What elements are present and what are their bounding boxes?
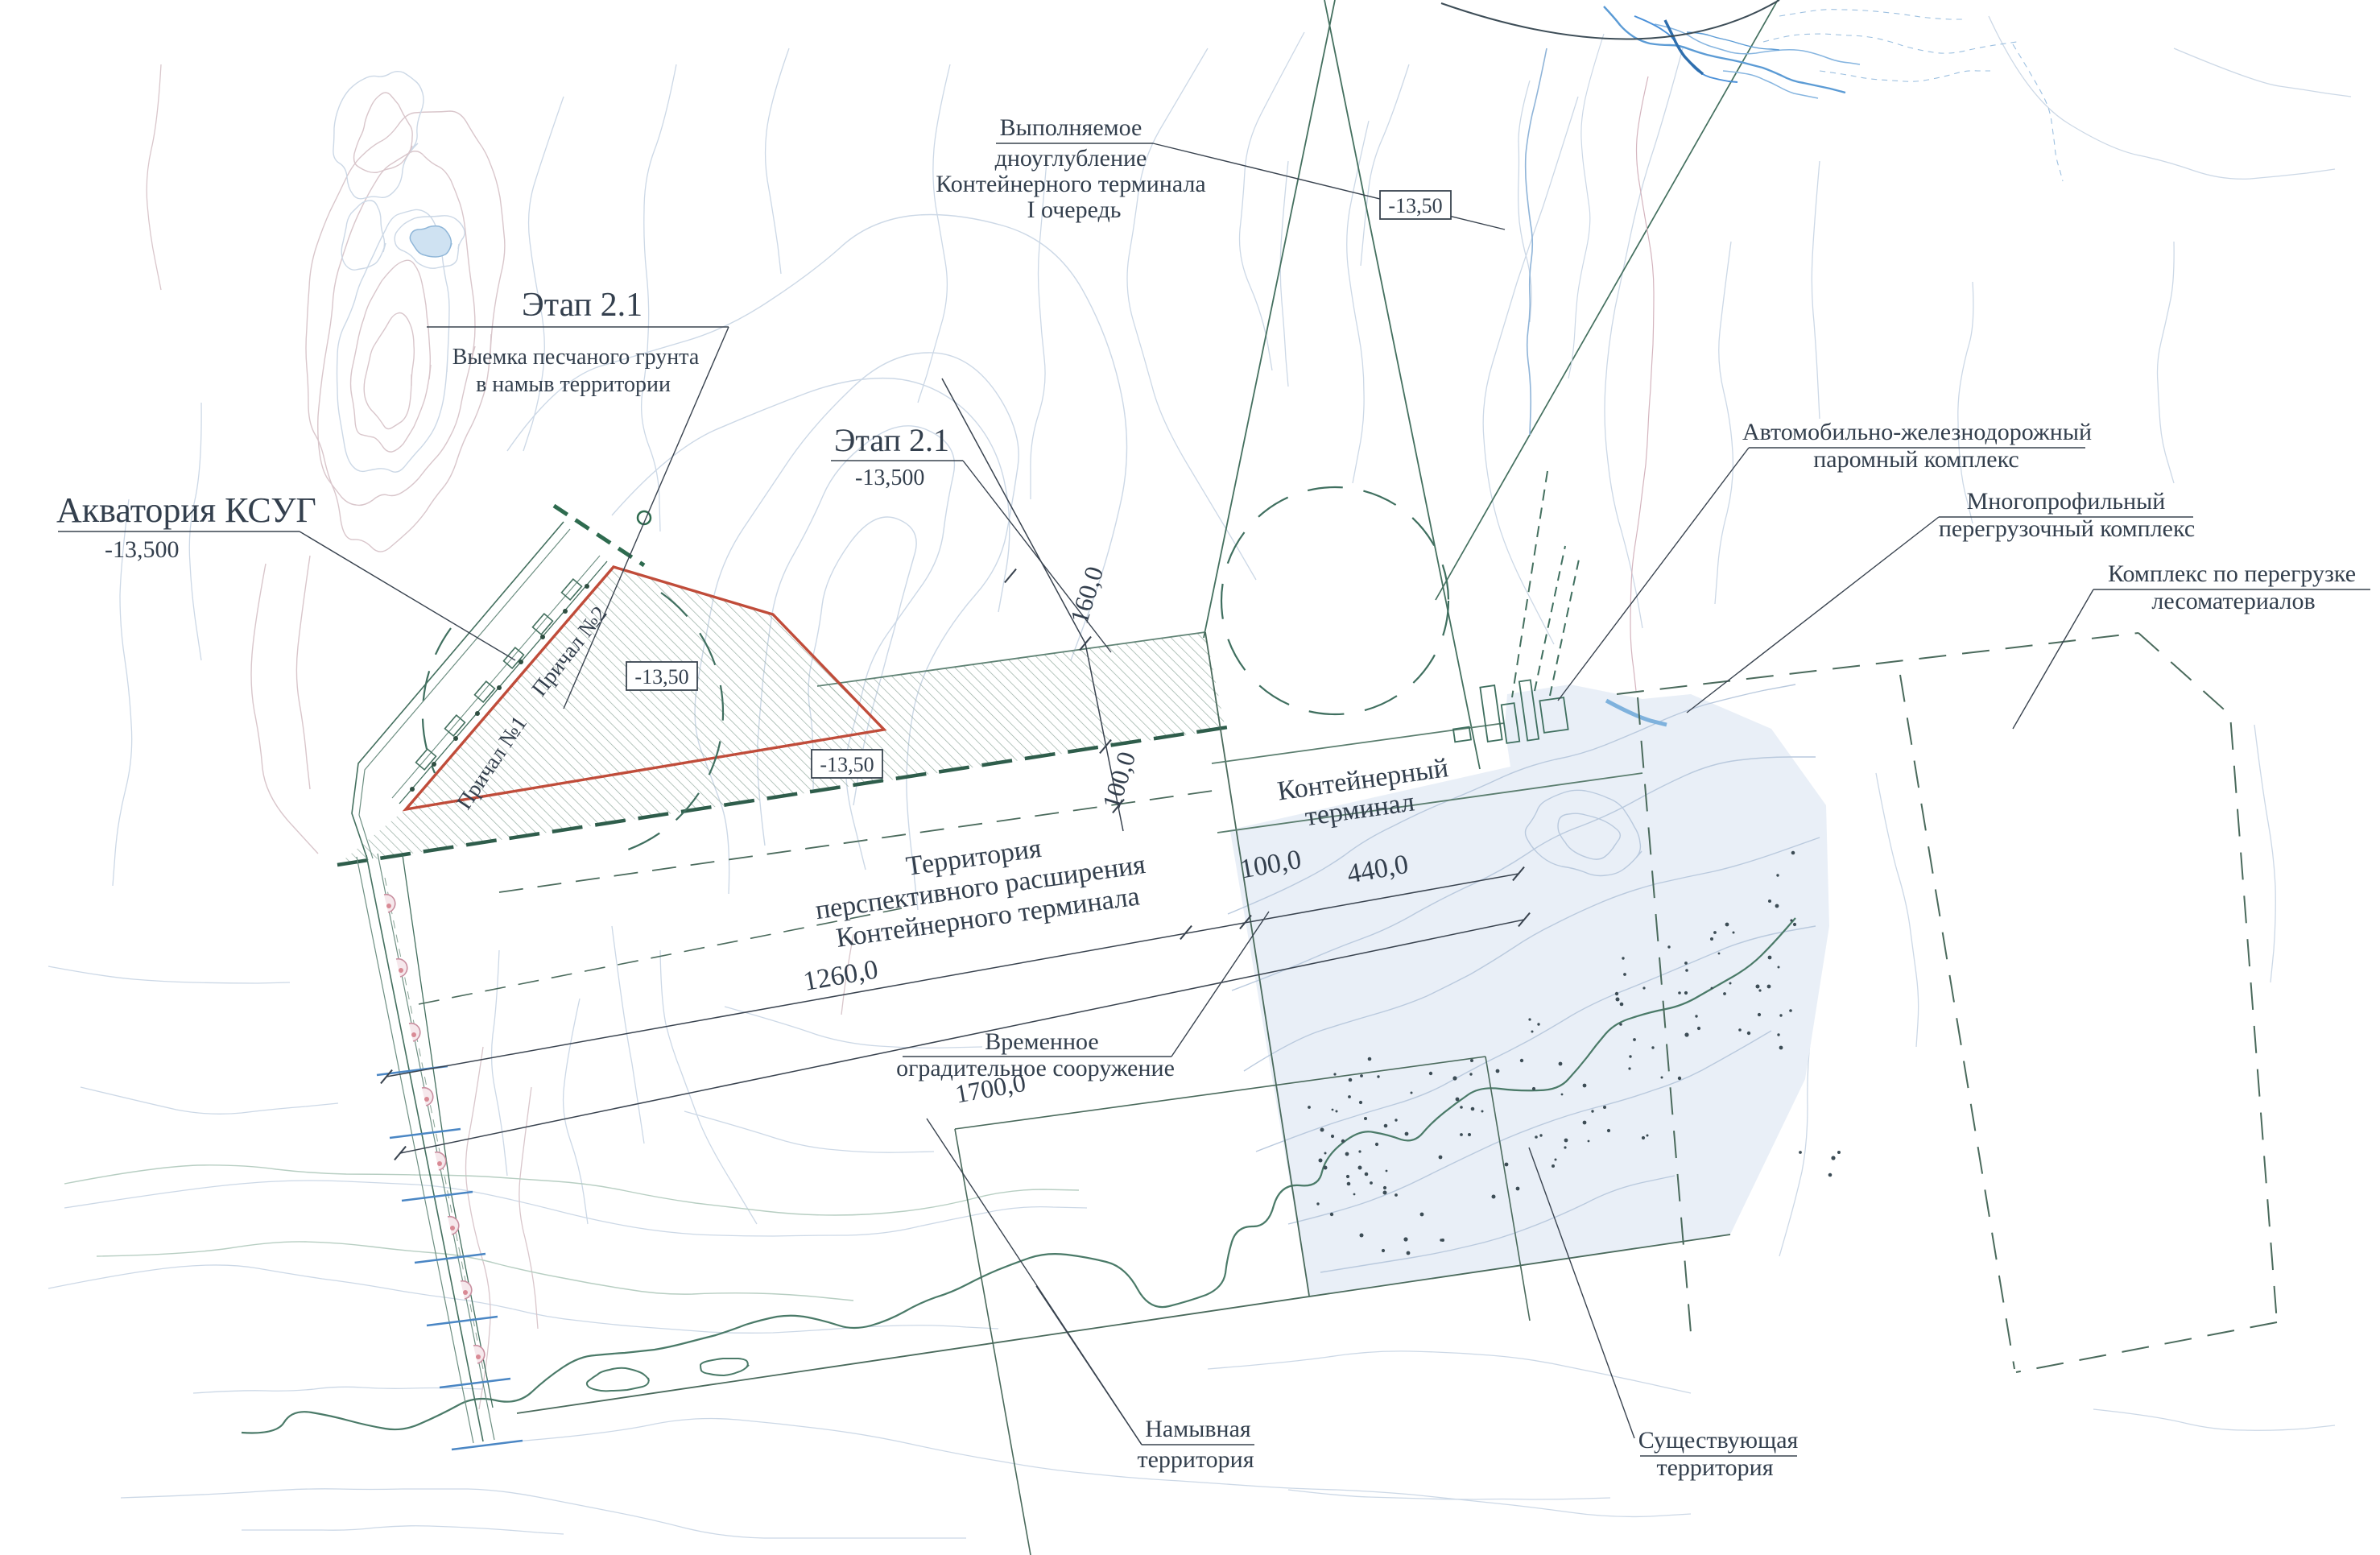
svg-text:Автомобильно-железнодорожный: Автомобильно-железнодорожный <box>1742 419 2092 445</box>
svg-text:лесоматериалов: лесоматериалов <box>2151 588 2315 614</box>
svg-text:Этап 2.1: Этап 2.1 <box>522 287 643 324</box>
svg-text:-13,50: -13,50 <box>820 753 874 776</box>
svg-text:-13,50: -13,50 <box>634 665 688 689</box>
svg-text:оградительное сооружение: оградительное сооружение <box>896 1055 1175 1081</box>
svg-text:Выполняемое: Выполняемое <box>1000 114 1142 141</box>
svg-text:Намывная: Намывная <box>1145 1416 1251 1442</box>
svg-text:в намыв территории: в намыв территории <box>476 372 671 397</box>
svg-text:-13,500: -13,500 <box>105 536 180 563</box>
svg-text:Комплекс по перегрузке: Комплекс по перегрузке <box>2108 560 2356 587</box>
svg-text:I очередь: I очередь <box>1027 196 1122 223</box>
svg-text:-13,50: -13,50 <box>1388 194 1442 217</box>
svg-text:Выемка песчаного грунта: Выемка песчаного грунта <box>452 345 700 370</box>
svg-text:паромный комплекс: паромный комплекс <box>1813 446 2019 473</box>
svg-text:Временное: Временное <box>985 1028 1098 1055</box>
svg-text:-13,500: -13,500 <box>855 465 924 490</box>
svg-text:Этап 2.1: Этап 2.1 <box>834 422 949 458</box>
svg-text:перегрузочный комплекс: перегрузочный комплекс <box>1939 515 2195 542</box>
svg-text:Контейнерного терминала: Контейнерного терминала <box>936 171 1205 197</box>
svg-text:территория: территория <box>1137 1446 1254 1473</box>
svg-text:Многопрофильный: Многопрофильный <box>1967 488 2166 515</box>
svg-text:Акватория КСУГ: Акватория КСУГ <box>56 490 316 530</box>
svg-text:территория: территория <box>1656 1454 1773 1481</box>
svg-text:Существующая: Существующая <box>1638 1427 1799 1454</box>
svg-text:дноуглубление: дноуглубление <box>995 145 1147 172</box>
